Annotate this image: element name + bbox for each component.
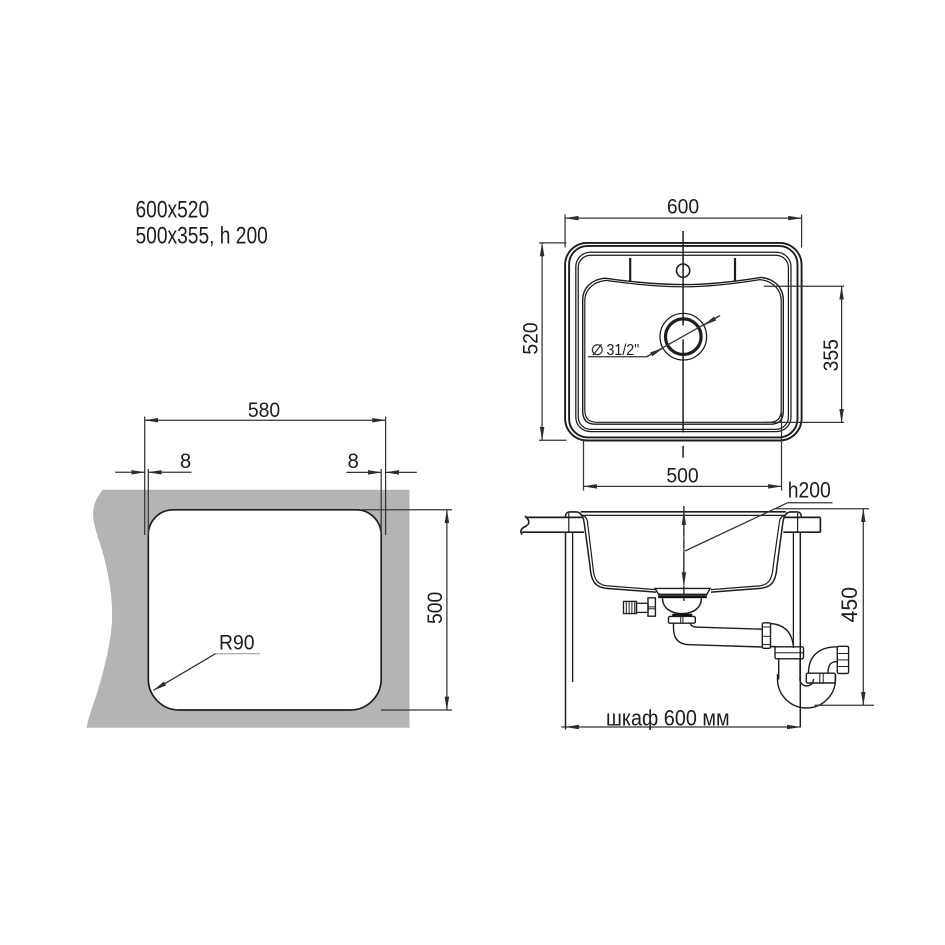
svg-text:355: 355 (819, 339, 843, 371)
svg-text:580: 580 (248, 398, 280, 422)
svg-text:500: 500 (666, 464, 698, 488)
svg-text:450: 450 (836, 587, 862, 623)
svg-text:520: 520 (519, 322, 543, 354)
svg-text:шкаф 600 мм: шкаф 600 мм (606, 706, 730, 730)
svg-text:500: 500 (423, 592, 447, 624)
svg-text:R90: R90 (219, 631, 254, 655)
svg-text:500x355, h 200: 500x355, h 200 (136, 222, 268, 250)
svg-text:600: 600 (667, 195, 699, 219)
svg-text:8: 8 (180, 450, 191, 474)
svg-text:8: 8 (348, 450, 359, 474)
svg-text:h200: h200 (788, 478, 831, 503)
svg-text:31/2": 31/2" (607, 343, 640, 360)
svg-text:600x520: 600x520 (136, 195, 210, 223)
